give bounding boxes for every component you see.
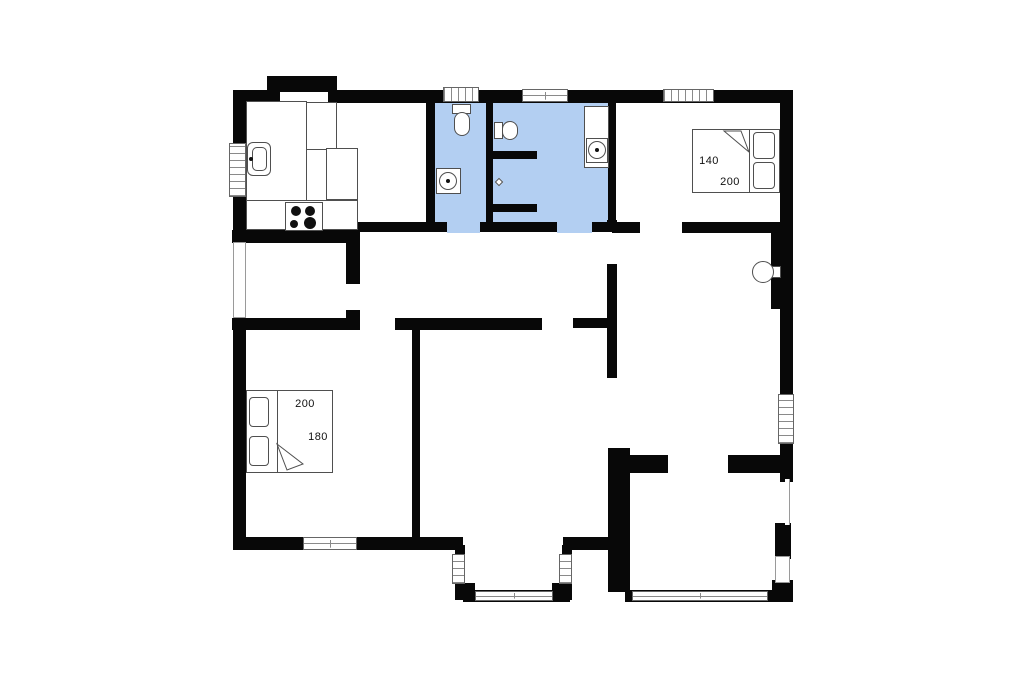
bedroom-bl-north-wall: [232, 318, 360, 330]
bath-south-wall-1: [346, 222, 447, 232]
opening-right-wall: [785, 479, 790, 525]
outer-wall-left-1: [233, 90, 246, 145]
kitchen-peninsula: [326, 148, 358, 200]
bed-top-right-pillow-2: [753, 162, 775, 189]
kitchen-south-wall: [232, 230, 358, 243]
outer-wall-left-3: [233, 317, 246, 550]
window-bay-left: [452, 554, 465, 584]
outer-wall-alcove-bump: [267, 76, 337, 92]
shower-wall-stub-1: [493, 151, 537, 159]
bed-top-right-divider: [749, 130, 750, 192]
kitchen-sink-faucet: [249, 157, 253, 161]
wood-stove: [752, 261, 774, 283]
bath-south-wall-2: [480, 222, 557, 232]
bath-bedroom-divider: [608, 103, 616, 222]
bathroom-doorway-floor: [557, 222, 592, 233]
bed-top-right-length-label: 200: [720, 176, 740, 188]
window-wc-top: [443, 87, 479, 102]
stove-burner-4: [304, 217, 316, 229]
bed-top-right-pillow-1: [753, 132, 775, 159]
center-room-divider: [412, 320, 420, 537]
corridor-east-wall-1: [346, 222, 360, 284]
stove-burner-2: [305, 206, 315, 216]
stove-burner-3: [290, 220, 298, 228]
window-kitchen-left: [229, 143, 246, 197]
bedroom-tr-south-wall-2: [682, 222, 782, 233]
hall-east-wall-1: [607, 220, 617, 232]
window-bedroom-bl-bottom: [303, 537, 357, 550]
window-bottomright-room: [632, 591, 768, 601]
window-right-wall: [778, 394, 794, 444]
kitchen-sink-basin: [252, 147, 267, 171]
bed-bottom-left-divider: [277, 391, 278, 472]
bed-top-right-width-label: 140: [699, 155, 719, 167]
hall-east-wall-2: [607, 264, 617, 378]
bed-bottom-left-length-label: 180: [308, 431, 328, 443]
bed-bottom-left-pillow-2: [249, 436, 269, 466]
bottomright-room-west-wall: [608, 448, 630, 592]
bath-toilet-bowl: [502, 121, 518, 140]
stove-burner-1: [291, 206, 301, 216]
window-bay-right: [559, 554, 572, 584]
bed-bottom-left-pillow-1: [249, 397, 269, 427]
terrace-door-left: [233, 242, 246, 318]
shower-wall-stub-2: [493, 204, 537, 212]
wc-doorway-floor: [447, 222, 480, 233]
bed-bottom-left-width-label: 200: [295, 398, 315, 410]
living-south-wall-2: [728, 455, 782, 473]
right-wall-lower-segment: [775, 523, 791, 559]
window-bedroom-tr-top: [663, 89, 714, 102]
floorplan-canvas: 140200200180: [0, 0, 1024, 682]
wc-washbasin-drain: [446, 179, 450, 183]
door-bottomright-east: [775, 556, 790, 583]
wc-toilet-bowl: [454, 112, 470, 136]
bathroom-divider: [486, 103, 493, 222]
floorplan: 140200200180: [0, 0, 1024, 682]
window-bay-bottom: [475, 591, 553, 601]
bath-washbasin-drain: [595, 148, 599, 152]
window-bath-top: [522, 89, 568, 102]
kitchen-bath-divider: [426, 103, 435, 222]
